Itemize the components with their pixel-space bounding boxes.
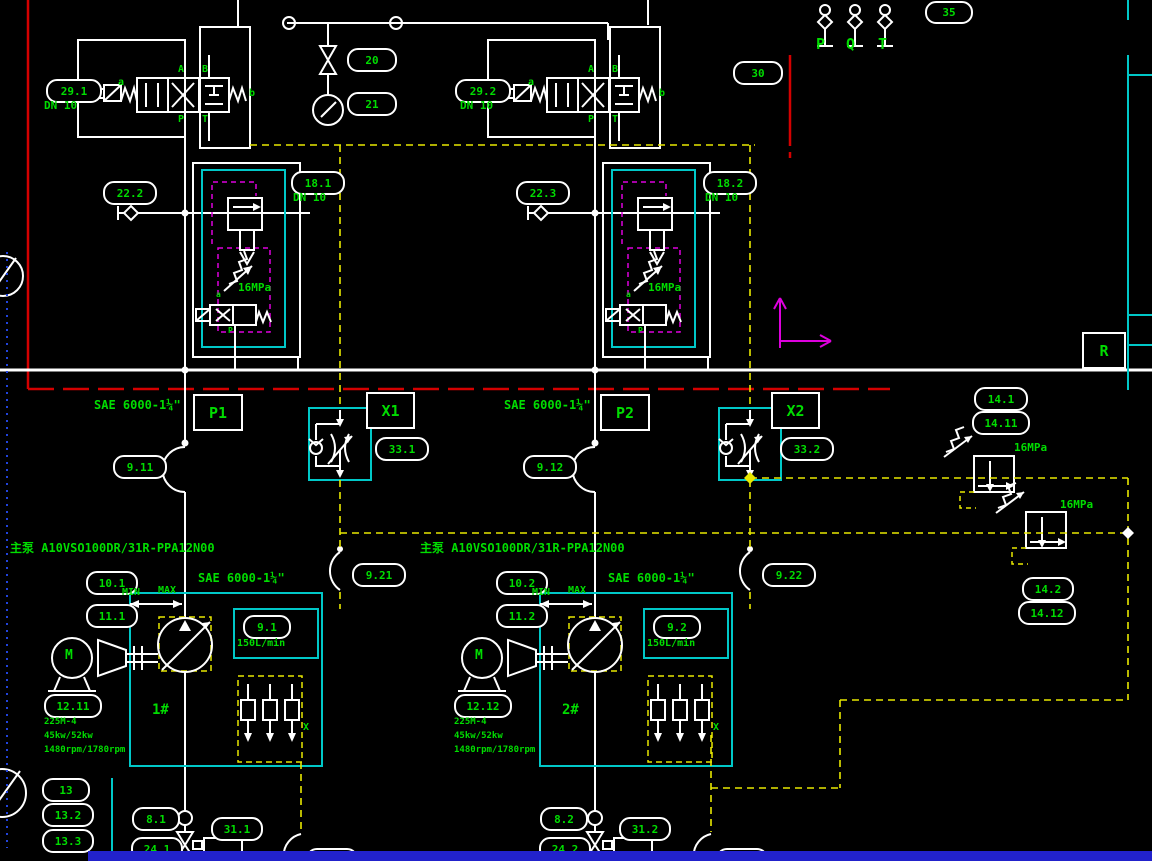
directional-valve-29-1: [78, 27, 250, 148]
junction-dots: [182, 210, 754, 553]
ucs-axes-icon: [774, 298, 831, 348]
red-border-lines: [28, 0, 890, 389]
flow-control-x1: [309, 408, 371, 480]
test-coupling-q: [847, 5, 863, 46]
relief-valve-group-18-2: [603, 163, 710, 370]
top-manifold: [238, 0, 648, 125]
directional-valve-29-2: [488, 27, 660, 148]
left-edge-symbols: [0, 256, 26, 817]
test-point-22-3: [528, 206, 720, 220]
pilot-junction-diamond: [744, 472, 756, 484]
relief-valve-group-18-1: [193, 163, 300, 370]
pump-pressure-line-2: [573, 148, 596, 861]
test-point-22-2: [118, 206, 310, 220]
bottom-blue-bar: [88, 851, 1152, 861]
pilot-lines: [250, 145, 1128, 832]
cad-canvas: 29.1202129.2303522.218.122.318.214.114.1…: [0, 0, 1152, 861]
test-coupling-p: [817, 5, 833, 46]
pump-pressure-line-1: [163, 148, 186, 861]
test-coupling-t: [877, 5, 893, 46]
shutoff-valve-icon: [320, 46, 336, 74]
hose-arcs: [284, 552, 750, 861]
right-edge-lines: [1128, 0, 1152, 390]
relief-valve-14-2: [996, 483, 1066, 564]
circuit-drawing: [0, 0, 1152, 861]
junction-diamond: [1122, 527, 1134, 539]
flow-control-x2: [719, 408, 781, 480]
